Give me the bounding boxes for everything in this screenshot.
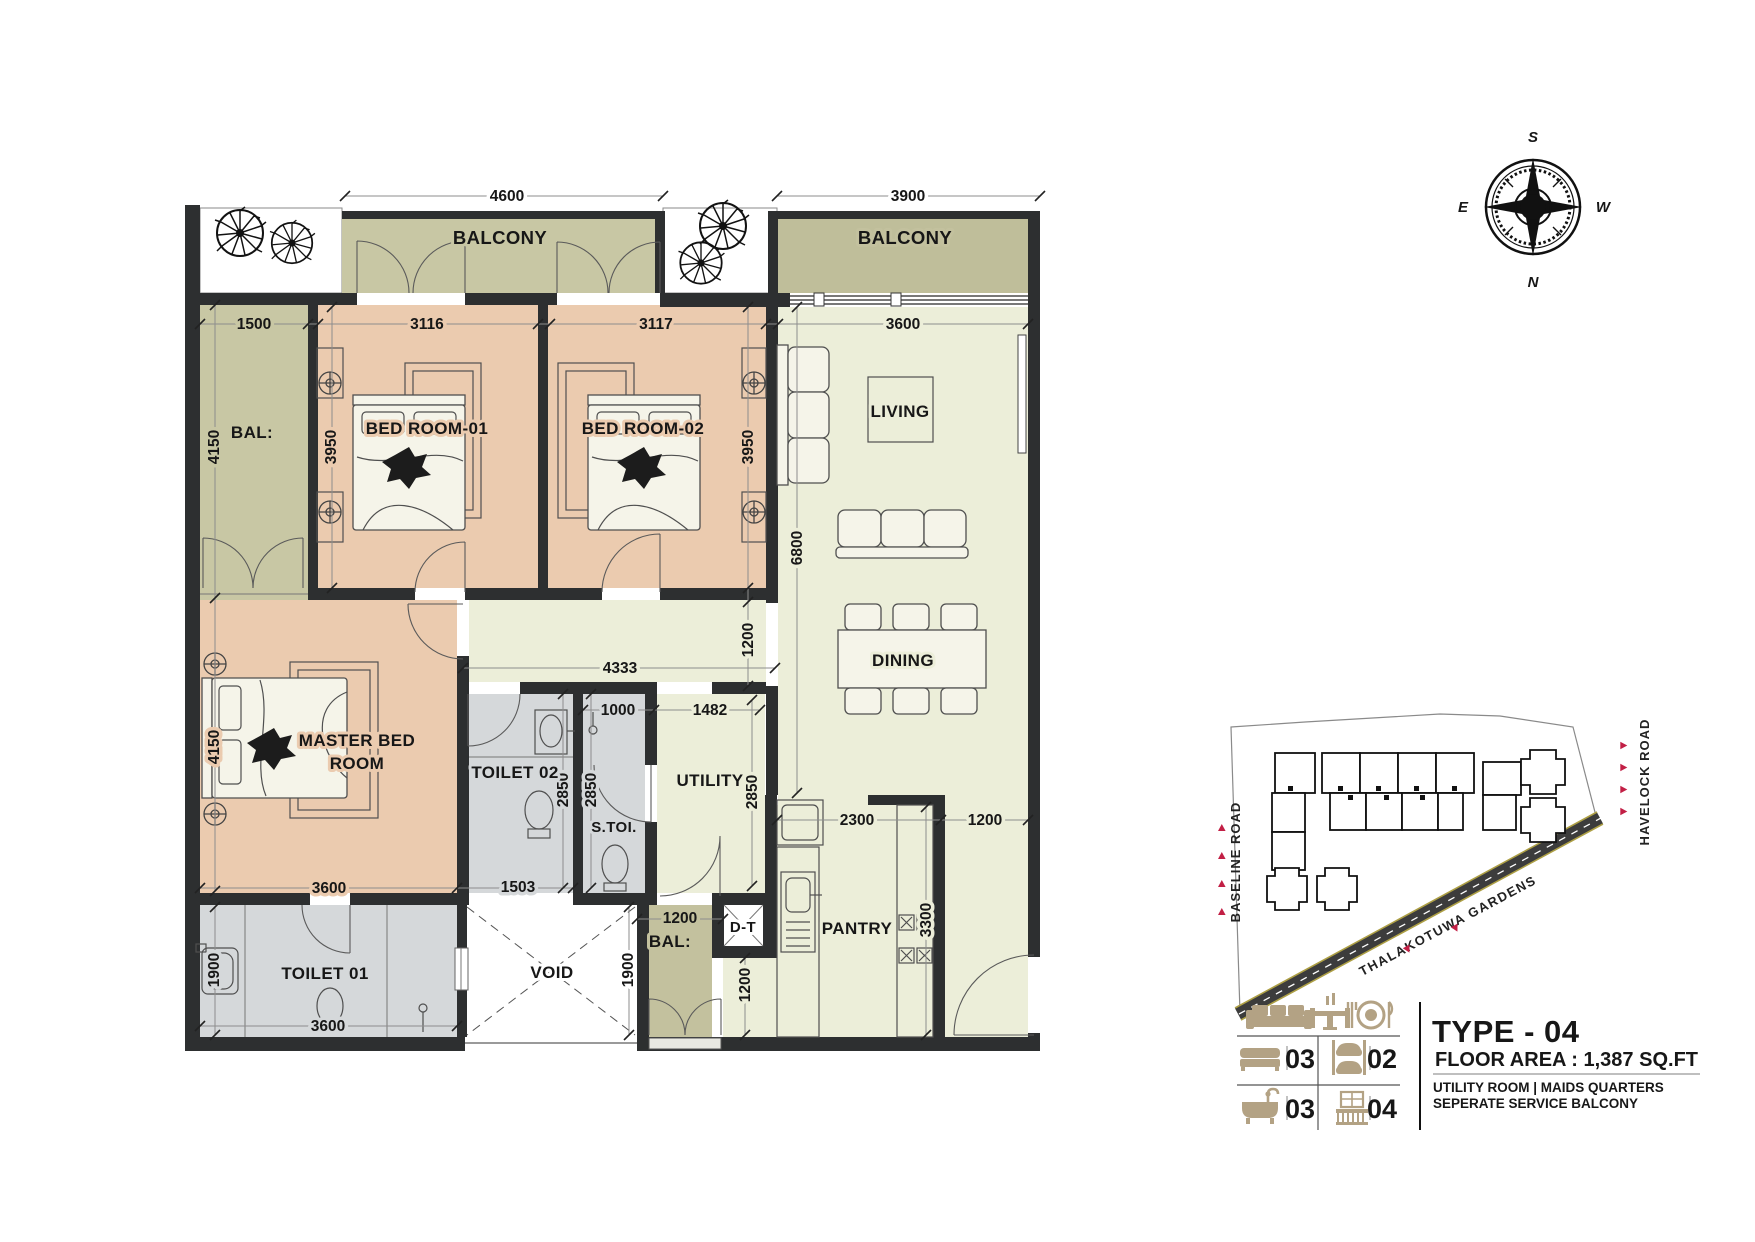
room-label-toilet-1: TOILET 01 <box>281 964 368 983</box>
balcony-count: 04 <box>1367 1094 1397 1124</box>
dim-label: 6800 <box>789 531 806 565</box>
sofa-icon <box>1246 1005 1312 1029</box>
site-location-map: BASELINE ROAD HAVELOCK ROAD THALAKOTUWA … <box>1218 714 1652 1020</box>
balcony-1-floor <box>342 214 655 293</box>
floor-plan: 4600 3900 1500 3116 3117 3600 4150 3950 … <box>185 188 1045 1051</box>
tv-unit <box>1018 335 1026 453</box>
note-line-1: UTILITY ROOM | MAIDS QUARTERS <box>1433 1080 1664 1095</box>
havelock-road-label: HAVELOCK ROAD <box>1637 719 1652 846</box>
highlighted-unit <box>1275 753 1315 793</box>
room-label-bedroom-1: BED ROOM-01 <box>366 419 488 438</box>
type-title: TYPE - 04 <box>1432 1014 1580 1049</box>
dim-label: 3117 <box>639 316 673 333</box>
compass-south: S <box>1528 129 1538 146</box>
bedroom-count: 03 <box>1285 1044 1315 1074</box>
dim-label: 3950 <box>740 430 757 464</box>
dim-label: 2300 <box>840 812 874 829</box>
dim-label: 4150 <box>206 430 223 464</box>
bed-icon <box>1240 1048 1280 1071</box>
room-label-master-1: MASTER BED <box>299 731 415 750</box>
compass-east: E <box>1458 199 1469 216</box>
dim-label: 1482 <box>693 702 727 719</box>
dim-label: 1900 <box>620 953 637 987</box>
dim-label: 3300 <box>918 903 935 937</box>
dim-label: 4333 <box>603 660 638 677</box>
room-label-bedroom-2: BED ROOM-02 <box>582 419 704 438</box>
room-label-living: LIVING <box>870 402 929 421</box>
sliding-window <box>790 293 1028 306</box>
dim-label: 1200 <box>663 910 697 927</box>
room-label-balcony-2: BALCONY <box>858 227 953 248</box>
dim-label: 4150 <box>206 730 223 764</box>
dim-label: 2850 <box>583 773 600 807</box>
bathtub-icon <box>1242 1089 1278 1124</box>
compass-north: N <box>1528 274 1540 291</box>
baseline-road-label: BASELINE ROAD <box>1228 802 1243 923</box>
dim-label: 3950 <box>323 430 340 464</box>
room-label-bal-left: BAL: <box>231 423 273 442</box>
note-line-2: SEPERATE SERVICE BALCONY <box>1433 1096 1638 1111</box>
dim-label: 1200 <box>740 623 757 657</box>
room-label-toilet-2: TOILET 02 <box>471 763 558 782</box>
dim-label: 4600 <box>490 188 524 205</box>
dim-label: 3600 <box>886 316 920 333</box>
dim-label: 1503 <box>501 879 536 896</box>
dim-label: 3900 <box>891 188 925 205</box>
room-label-master-2: ROOM <box>330 754 384 773</box>
dim-label: 1200 <box>737 968 754 1002</box>
room-label-dining: DINING <box>872 651 934 670</box>
room-label-stoi: S.TOI. <box>591 819 636 836</box>
car-parking-icon <box>1332 1040 1366 1075</box>
dining-set-icon <box>1310 993 1350 1030</box>
window-handle <box>814 293 824 306</box>
room-label-void: VOID <box>530 963 573 982</box>
compass-west: W <box>1596 199 1612 216</box>
tableware-icon <box>1348 1002 1392 1028</box>
floor-area: FLOOR AREA : 1,387 SQ.FT <box>1435 1049 1698 1071</box>
room-label-pantry: PANTRY <box>822 919 893 938</box>
legend: 03 02 03 04 TYPE - 04 FLOOR ARE <box>1237 993 1700 1130</box>
compass-rose: S E W N <box>1458 129 1612 291</box>
room-label-balcony-1: BALCONY <box>453 227 548 248</box>
balcony-icon <box>1336 1092 1368 1125</box>
room-label-bal-bottom: BAL: <box>649 932 691 951</box>
dim-label: 3600 <box>312 880 346 897</box>
dim-label: 3116 <box>410 316 444 333</box>
room-label-dt: D-T <box>730 919 756 936</box>
dim-label: 1500 <box>237 316 271 333</box>
dim-label: 2850 <box>744 775 761 809</box>
bathroom-count: 03 <box>1285 1094 1315 1124</box>
bal-bottom-window <box>649 1038 721 1049</box>
dim-label: 1200 <box>968 812 1002 829</box>
balcony-2-floor <box>777 214 1028 293</box>
dim-label: 3600 <box>311 1018 345 1035</box>
drawing-canvas: 4600 3900 1500 3116 3117 3600 4150 3950 … <box>0 0 1755 1242</box>
room-label-utility: UTILITY <box>676 771 743 790</box>
dim-label: 1000 <box>601 702 635 719</box>
dim-label: 1900 <box>206 953 223 987</box>
thalakotuwa-gardens-label: THALAKOTUWA GARDENS <box>1357 872 1539 978</box>
window-handle <box>891 293 901 306</box>
floor-plan-sheet: 4600 3900 1500 3116 3117 3600 4150 3950 … <box>0 0 1755 1242</box>
parking-count: 02 <box>1367 1044 1397 1074</box>
